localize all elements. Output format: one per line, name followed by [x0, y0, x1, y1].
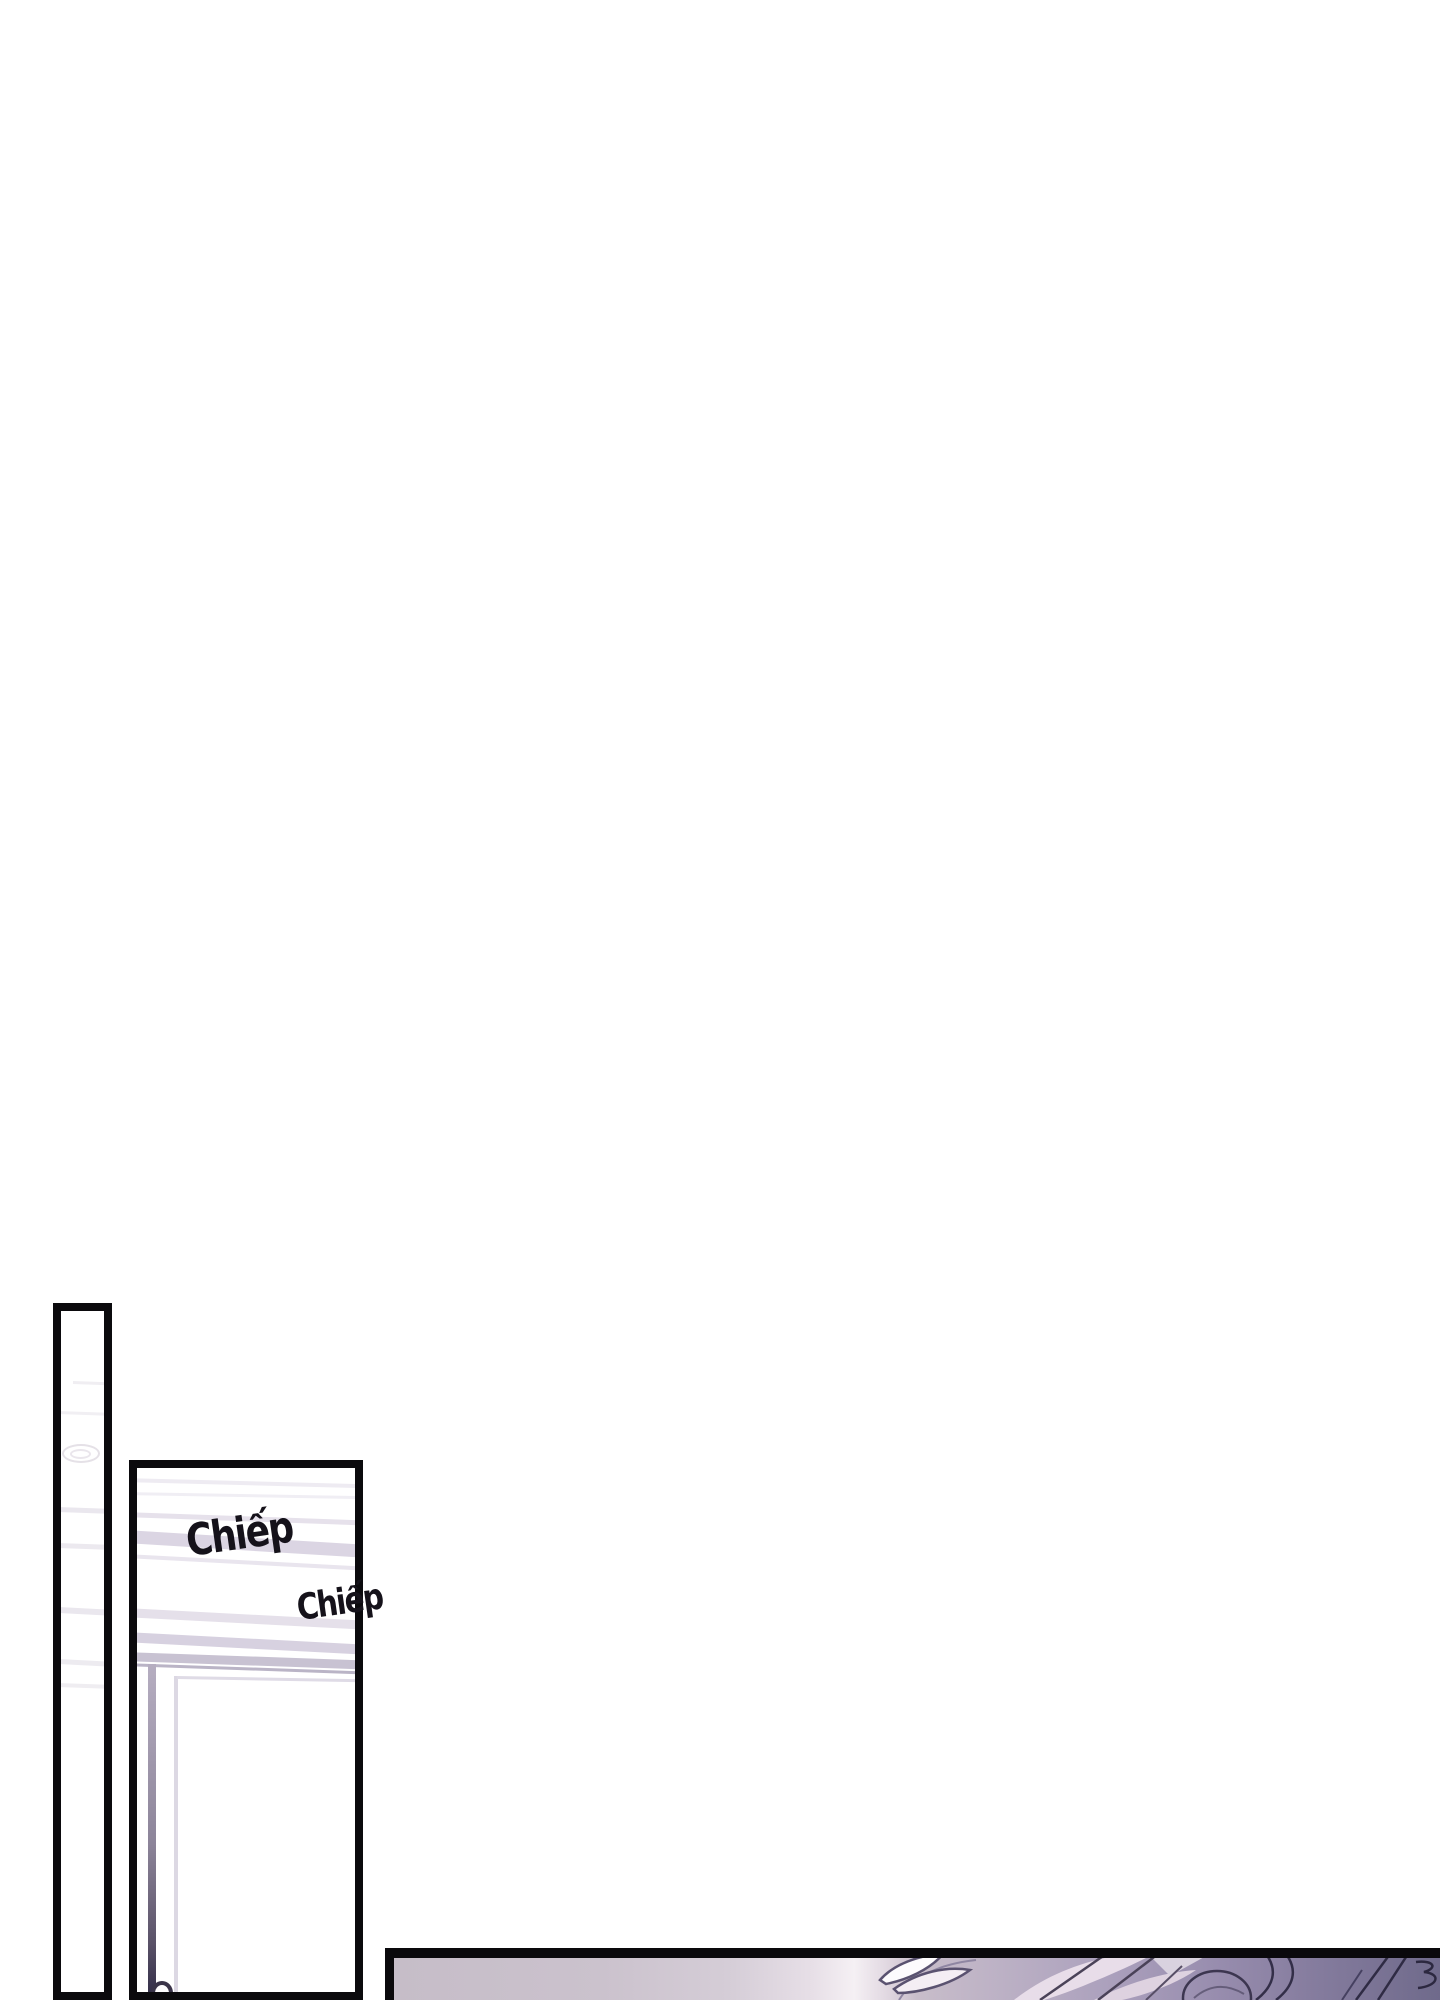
tall-wall-interior: [61, 1311, 104, 1992]
wood-knot-inner: [70, 1449, 91, 1459]
comic-page: Chiếp Chiếp: [0, 0, 1440, 2000]
hair-artwork: [394, 1958, 1440, 2000]
door-top-edge: [177, 1676, 355, 1682]
comic-panel-tall-wall: [53, 1303, 112, 2000]
wood-grain-line: [61, 1411, 104, 1416]
wood-grain-line: [73, 1381, 104, 1385]
wall-stripe: [137, 1632, 355, 1655]
wall-stripe: [137, 1492, 355, 1499]
door-handle: [151, 1981, 173, 1992]
door-edge: [174, 1676, 178, 1992]
wall-stripe: [61, 1607, 104, 1616]
door-frame-post: [148, 1664, 156, 1992]
comic-panel-hair-closeup: [385, 1948, 1440, 2000]
wall-stripe: [61, 1659, 104, 1667]
wall-stripe: [137, 1478, 355, 1489]
wall-stripe: [61, 1543, 104, 1550]
wall-stripe: [61, 1683, 104, 1689]
wall-stripe: [61, 1507, 104, 1514]
